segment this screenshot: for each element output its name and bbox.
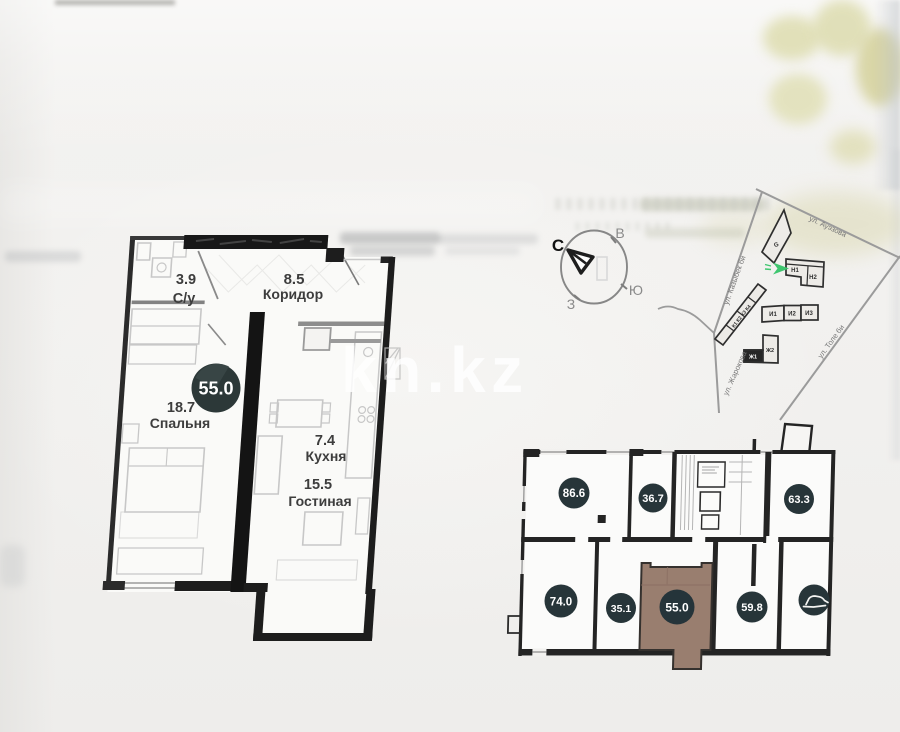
svg-text:Спальня: Спальня xyxy=(150,415,210,431)
svg-text:С/у: С/у xyxy=(173,291,196,307)
svg-text:В: В xyxy=(615,225,624,241)
svg-text:Н1: Н1 xyxy=(791,268,799,274)
svg-text:74.0: 74.0 xyxy=(550,597,572,609)
svg-text:ул. Казыбек би: ул. Казыбек би xyxy=(721,254,747,306)
svg-text:18.7: 18.7 xyxy=(167,400,195,416)
svg-text:И3: И3 xyxy=(805,311,813,317)
svg-text:Гостиная: Гостиная xyxy=(288,493,351,509)
svg-text:59.8: 59.8 xyxy=(741,602,762,614)
svg-text:36.7: 36.7 xyxy=(642,493,663,505)
svg-text:kn.kz: kn.kz xyxy=(341,334,529,406)
svg-text:ул. Ауэзова: ул. Ауэзова xyxy=(808,214,849,239)
svg-text:ул. Жарокова: ул. Жарокова xyxy=(721,349,749,397)
svg-text:3.9: 3.9 xyxy=(176,272,196,288)
svg-text:Ж1: Ж1 xyxy=(748,355,757,361)
svg-text:15.5: 15.5 xyxy=(304,477,332,493)
svg-text:ул. Толе би: ул. Толе би xyxy=(816,323,846,360)
svg-text:63.3: 63.3 xyxy=(788,494,809,506)
svg-text:55.0: 55.0 xyxy=(198,379,233,399)
svg-text:Ю: Ю xyxy=(629,282,643,298)
svg-text:З: З xyxy=(567,296,575,312)
svg-text:86.6: 86.6 xyxy=(563,488,585,500)
svg-text:И2: И2 xyxy=(788,312,796,318)
svg-text:55.0: 55.0 xyxy=(665,601,689,615)
svg-text:Ж2: Ж2 xyxy=(765,348,774,354)
svg-text:7.4: 7.4 xyxy=(315,433,335,449)
svg-text:Н2: Н2 xyxy=(809,275,817,281)
svg-text:С: С xyxy=(552,236,564,255)
svg-text:И1: И1 xyxy=(769,312,777,318)
svg-text:Кухня: Кухня xyxy=(306,448,347,464)
svg-text:35.1: 35.1 xyxy=(611,603,632,615)
svg-text:Коридор: Коридор xyxy=(263,286,323,302)
